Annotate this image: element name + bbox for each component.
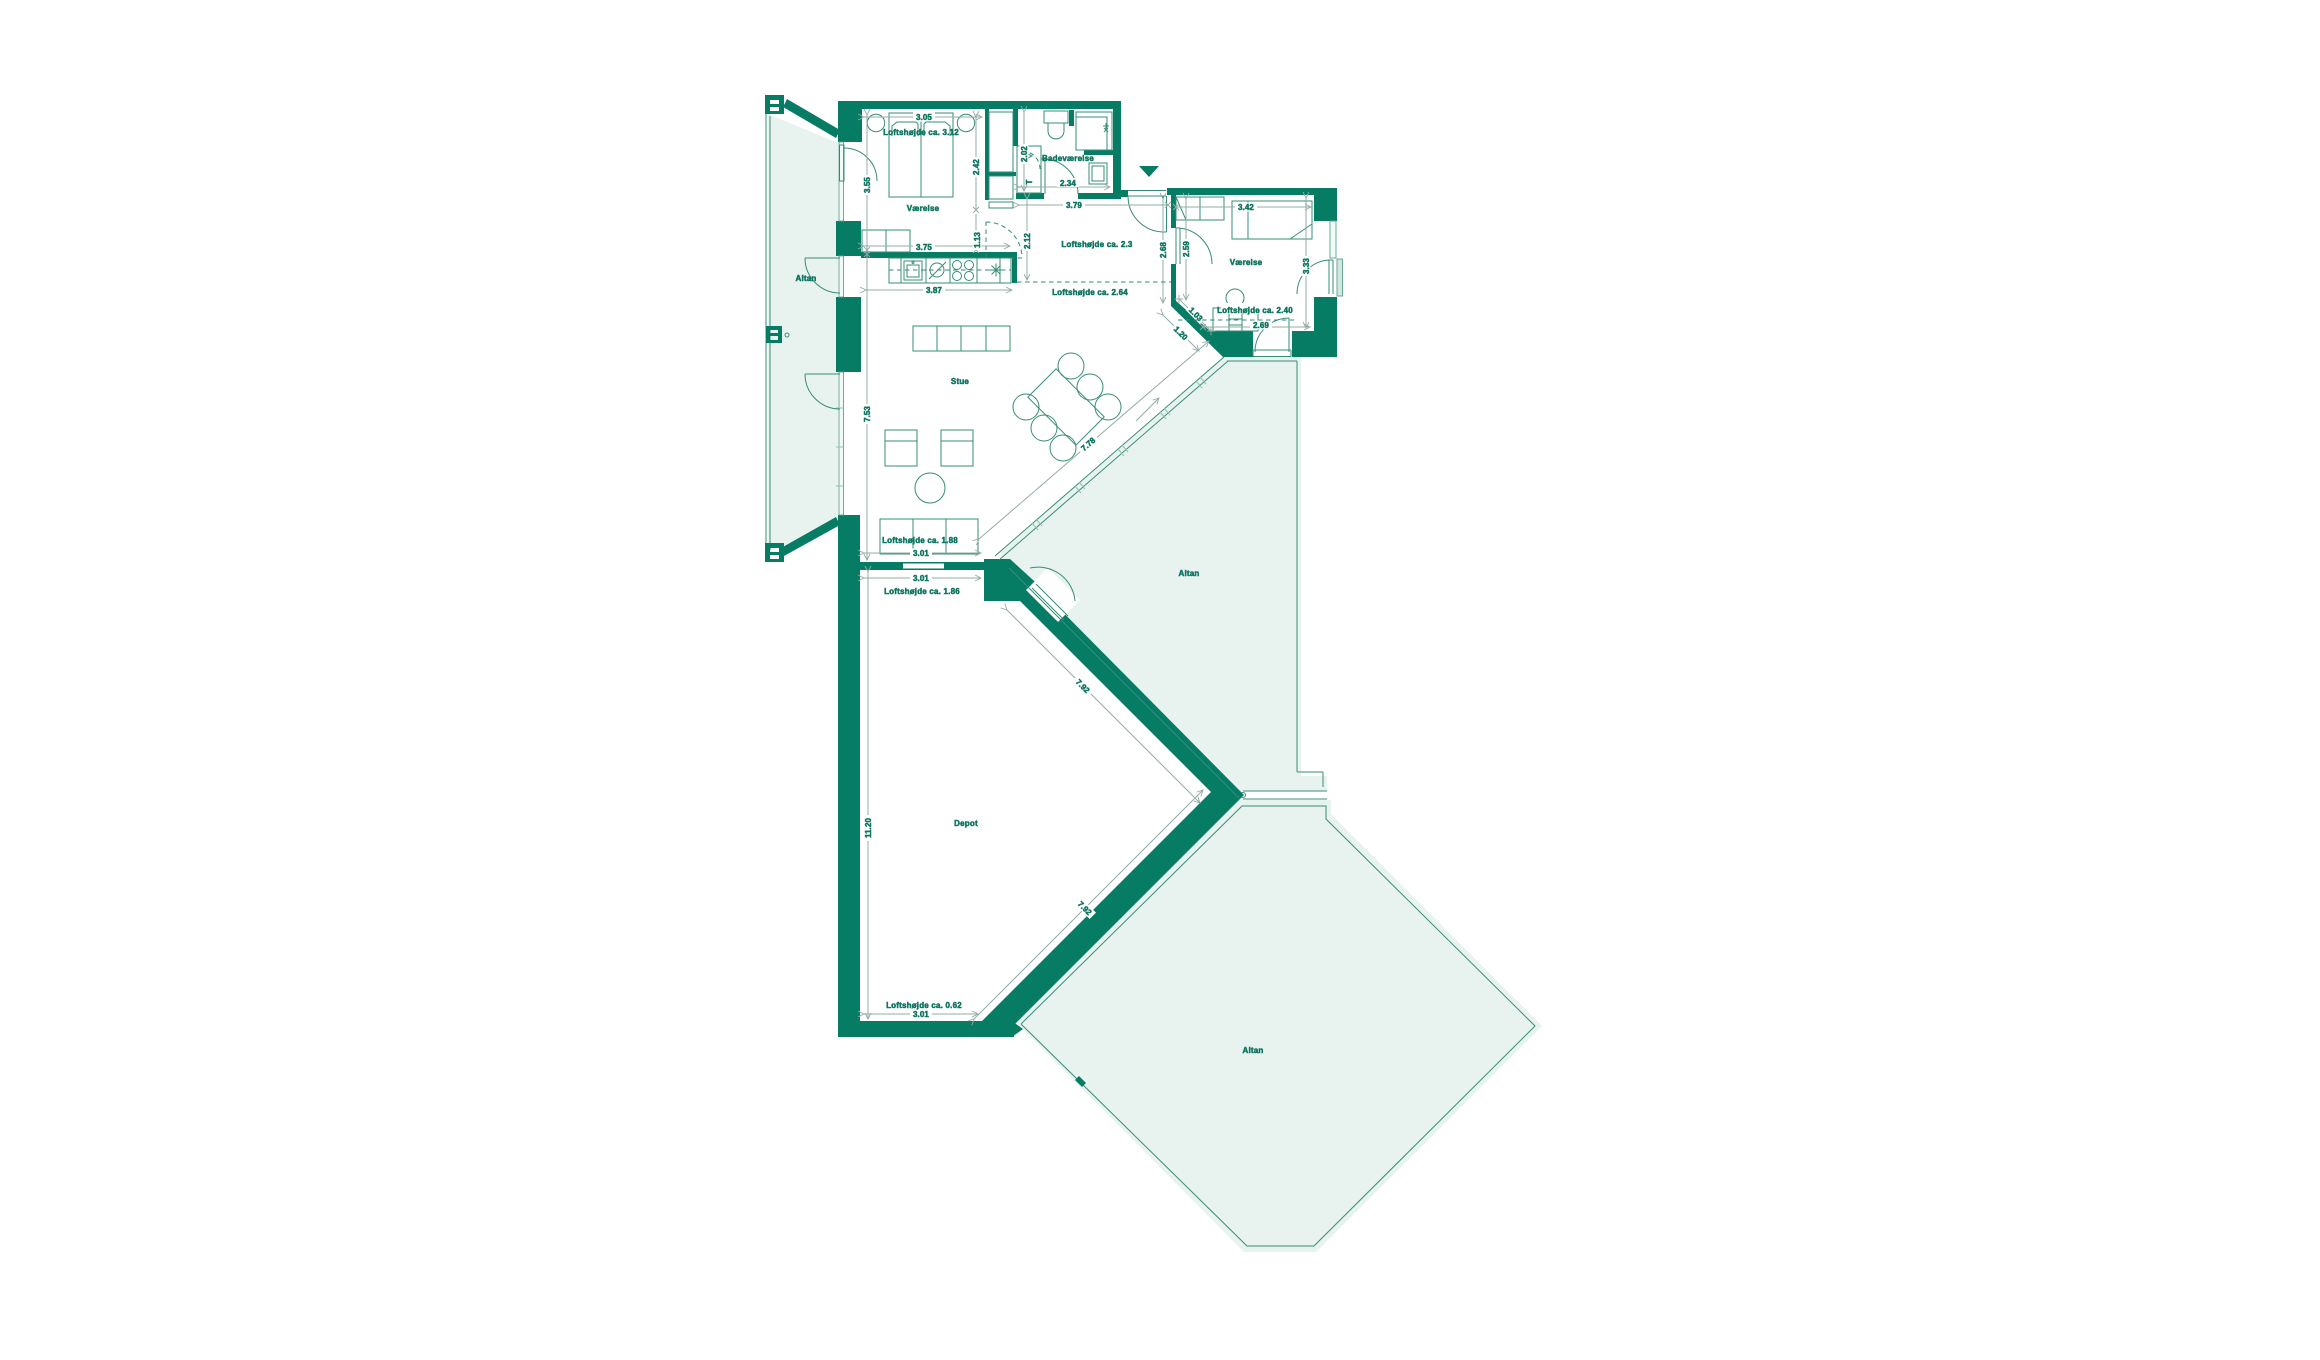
svg-text:Loftshøjde ca. 1.88: Loftshøjde ca. 1.88 [882, 536, 958, 545]
svg-text:Loftshøjde ca. 3.12: Loftshøjde ca. 3.12 [883, 128, 959, 137]
svg-text:3.75: 3.75 [916, 243, 932, 252]
svg-text:Depot: Depot [954, 819, 978, 828]
svg-text:Værelse: Værelse [907, 204, 940, 213]
svg-text:1.13: 1.13 [973, 232, 982, 248]
svg-text:3.79: 3.79 [1066, 201, 1082, 210]
svg-text:3.55: 3.55 [863, 177, 872, 193]
svg-text:Loftshøjde ca. 1.86: Loftshøjde ca. 1.86 [884, 587, 960, 596]
svg-text:Loftshøjde ca. 2.40: Loftshøjde ca. 2.40 [1217, 306, 1293, 315]
svg-text:2.42: 2.42 [972, 159, 981, 175]
svg-text:Stue: Stue [951, 377, 969, 386]
svg-text:3.01: 3.01 [913, 549, 929, 558]
svg-text:7.53: 7.53 [863, 406, 872, 422]
svg-text:T: T [1025, 179, 1034, 184]
svg-text:Loftshøjde ca. 2.3: Loftshøjde ca. 2.3 [1061, 240, 1133, 249]
svg-text:3.01: 3.01 [913, 574, 929, 583]
svg-text:2.69: 2.69 [1253, 321, 1269, 330]
svg-text:3.01: 3.01 [913, 1010, 929, 1019]
svg-text:2.02: 2.02 [1020, 146, 1029, 162]
svg-text:3.42: 3.42 [1238, 203, 1254, 212]
svg-text:2.68: 2.68 [1159, 242, 1168, 258]
svg-text:Loftshøjde ca. 0.62: Loftshøjde ca. 0.62 [886, 1001, 962, 1010]
svg-text:Altan: Altan [796, 274, 817, 283]
svg-text:11.20: 11.20 [864, 818, 873, 839]
svg-text:Loftshøjde ca. 2.64: Loftshøjde ca. 2.64 [1052, 288, 1128, 297]
svg-text:Altan: Altan [1179, 569, 1200, 578]
svg-text:Altan: Altan [1243, 1046, 1264, 1055]
svg-text:3.05: 3.05 [916, 113, 932, 122]
svg-text:Badeværelse: Badeværelse [1042, 154, 1094, 163]
svg-text:2.34: 2.34 [1060, 179, 1076, 188]
svg-text:2.12: 2.12 [1023, 233, 1032, 249]
svg-text:Værelse: Værelse [1230, 258, 1263, 267]
svg-text:2.59: 2.59 [1182, 241, 1191, 257]
svg-text:3.33: 3.33 [1302, 258, 1311, 274]
svg-text:3.87: 3.87 [926, 286, 942, 295]
